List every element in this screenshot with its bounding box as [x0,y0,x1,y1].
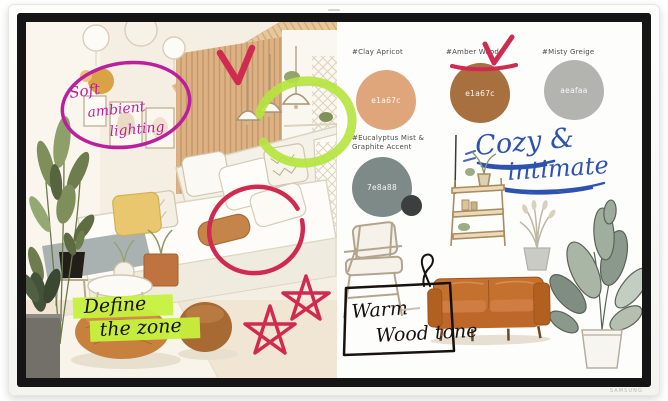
page: #Clay Apricot e1a67c #Amber Wood e1a67c … [0,0,668,401]
note-intimate: intimate [506,151,609,186]
swatch-label: #Eucalyptus Mist &Graphite Accent [352,134,452,152]
bezel-mark [328,9,340,11]
room-sketch-image [26,22,337,378]
graphite-accent-dot [401,195,422,216]
chair-sketch [344,222,402,318]
swatch-label: #Misty Greige [542,48,642,57]
note-cozy: Cozy & [474,122,575,162]
swatch-clay-apricot: #Clay Apricot e1a67c [352,48,452,57]
leather-sofa-sketch [427,277,550,346]
flip-canvas[interactable]: #Clay Apricot e1a67c #Amber Wood e1a67c … [26,22,642,378]
note-wood-tone: Wood tone [375,320,478,347]
swatch-label: #Clay Apricot [352,48,452,57]
shelf-sketch [451,152,505,246]
swatch-label: #Amber Wood [446,48,546,57]
swatch-color-circle: aeafaa [544,60,604,120]
brand-logo: SAMSUNG [610,388,643,394]
swatch-amber-wood: #Amber Wood e1a67c [446,48,546,57]
swatch-eucalyptus-graphite: #Eucalyptus Mist &Graphite Accent 7e8a88 [352,134,452,152]
warm-wood-tone-note: Warm Wood tone [344,254,478,355]
swatch-color-circle: e1a67c [356,70,416,130]
display-frame: #Clay Apricot e1a67c #Amber Wood e1a67c … [17,13,651,387]
note-warm: Warm [351,297,409,323]
pampas-vase-sketch [520,200,557,270]
plant-sketch [544,199,642,368]
swatch-hex-code: 7e8a88 [367,183,397,192]
cozy-intimate-note: Cozy & intimate [455,122,610,194]
swatch-hex-code: e1a67c [465,89,494,98]
swatch-hex-code: aeafaa [560,86,587,95]
swatch-misty-greige: #Misty Greige aeafaa [542,48,642,57]
swatch-hex-code: e1a67c [371,96,400,105]
swatch-color-circle: e1a67c [450,63,510,123]
display-device: #Clay Apricot e1a67c #Amber Wood e1a67c … [8,4,660,396]
